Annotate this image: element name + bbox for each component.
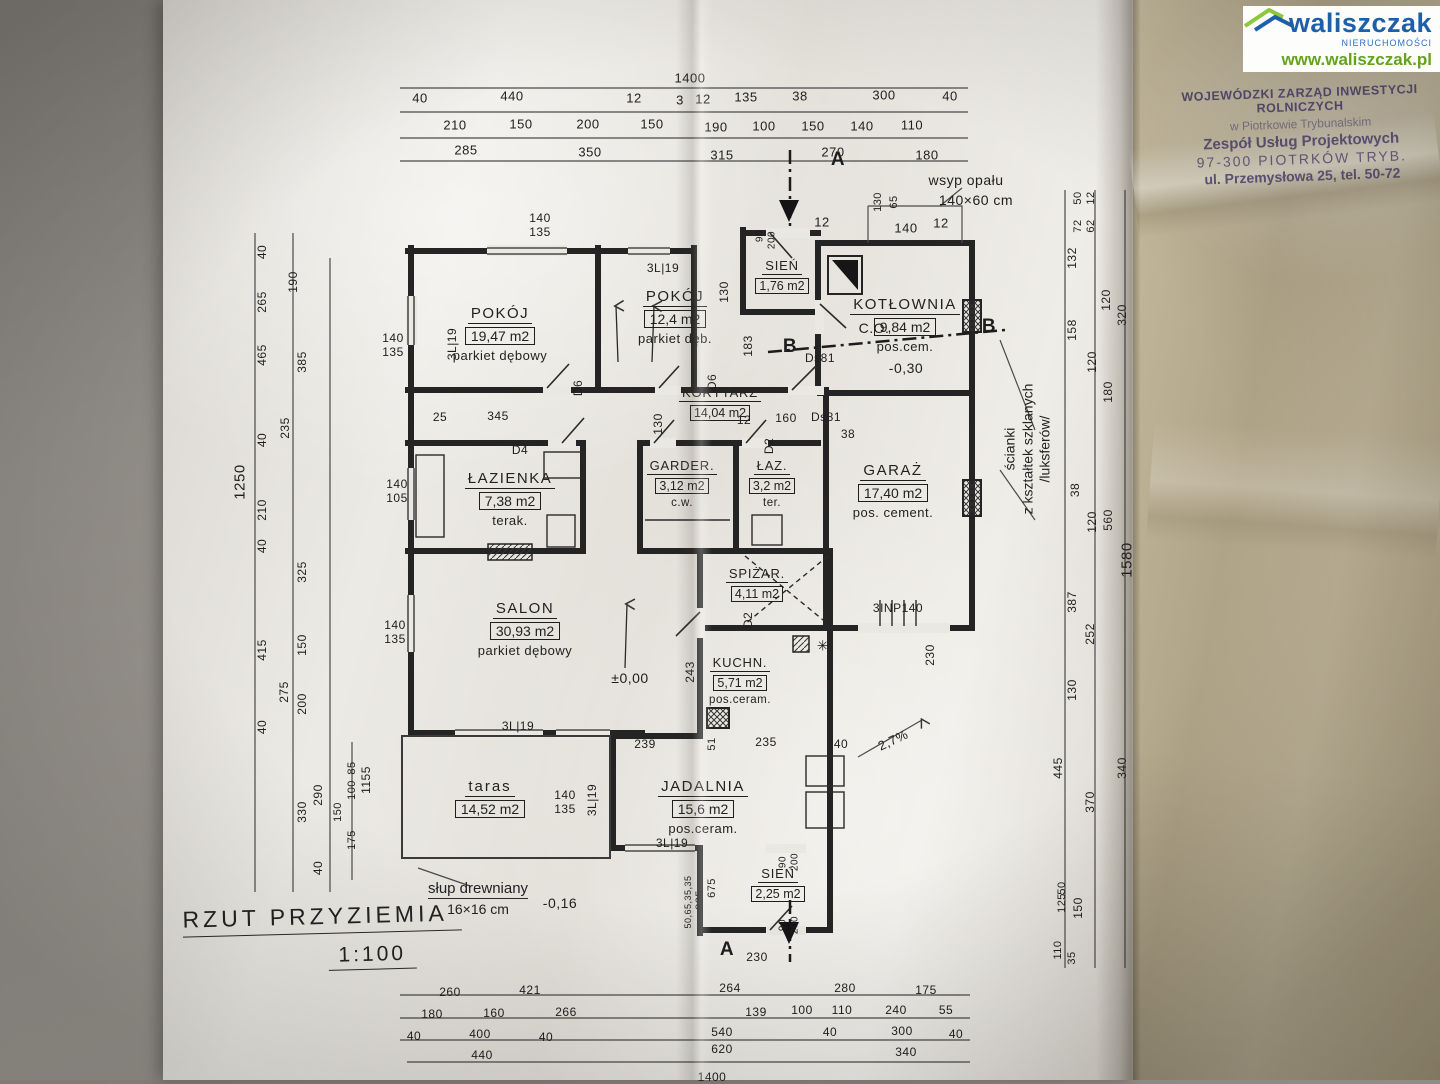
room-name: SALON — [493, 600, 557, 619]
dimension-label: 40 — [412, 91, 427, 106]
room-floor: pos. cement. — [853, 505, 933, 520]
dimension-label: 100 — [791, 1003, 813, 1017]
dimension-label: 265 — [255, 291, 269, 313]
dimension-label: 264 — [719, 981, 741, 995]
dimension-label: 110 — [1052, 940, 1064, 959]
dimension-label: 190 — [704, 120, 727, 135]
dimension-label: 675 — [706, 878, 718, 898]
dimension-label: 50 — [1072, 191, 1084, 204]
dimension-label: 160 — [483, 1006, 505, 1020]
dimension-label: -0,30 — [889, 360, 923, 376]
dimension-label: 440 — [500, 89, 523, 104]
room-name: POKÓJ — [643, 288, 707, 307]
room-label-korytarz: KORYTARZ 14,04 m2 — [655, 385, 785, 421]
dimension-label: D4 — [512, 443, 528, 457]
dimension-label: 150 — [509, 117, 532, 132]
dimension-label: 150 — [640, 117, 663, 132]
dimension-label: 3 — [676, 93, 684, 108]
dimension-label: 140 — [554, 788, 576, 802]
room-name: KUCHN. — [710, 655, 771, 672]
dimension-label: 200 — [790, 916, 801, 934]
dimension-label: 40 — [255, 539, 269, 553]
room-floor: parkiet dęb. — [638, 331, 712, 346]
room-label-kotlownia: KOTŁOWNIA 9,84 m2 pos.cem. — [840, 296, 970, 354]
dimension-label: 150 — [295, 634, 309, 656]
dimension-label: 825 — [694, 890, 706, 910]
dimension-label: 350 — [578, 145, 601, 160]
dimension-label: 12 — [933, 216, 948, 231]
room-name: JADALNIA — [658, 778, 748, 797]
dimension-label: 135 — [529, 225, 551, 239]
dimension-label: 620 — [711, 1042, 733, 1056]
room-name: KORYTARZ — [679, 385, 761, 402]
room-area: 15,6 m2 — [672, 800, 735, 818]
dimension-label: 130 — [872, 192, 884, 212]
office-stamp: WOJEWÓDZKI ZARZĄD INWESTYCJI ROLNICZYCH … — [1156, 81, 1440, 189]
dimension-label: 1155 — [359, 766, 373, 794]
drawing-title: RZUT PRZYZIEMIA 1:100 — [182, 899, 463, 974]
dimension-label: 239 — [634, 737, 656, 751]
dimension-label: 387 — [1065, 591, 1079, 613]
dimension-label: 440 — [471, 1048, 493, 1062]
room-label-salon: SALON 30,93 m2 parkiet dębowy — [450, 600, 600, 658]
dimension-label: 140 — [384, 618, 406, 632]
dimension-label: 230 — [746, 950, 768, 964]
dimension-label: 140 — [894, 221, 917, 236]
note-line: z kształtek szklanych — [1019, 357, 1037, 542]
dimension-label: 140 — [386, 477, 408, 491]
dimension-label: 12 — [814, 215, 829, 230]
dimension-label: 1400 — [675, 71, 706, 86]
dimension-label: 40 — [255, 433, 269, 447]
dimension-label: 40 — [255, 245, 269, 259]
dimension-label: 150 — [801, 119, 824, 134]
dimension-label: 135 — [384, 632, 406, 646]
room-area: 1,76 m2 — [755, 278, 808, 294]
dimension-label: 180 — [421, 1007, 443, 1021]
dimension-label: 285 — [454, 143, 477, 158]
dimension-label: B — [783, 336, 797, 358]
dimension-label: 235 — [755, 735, 777, 749]
room-area: 9,84 m2 — [874, 318, 937, 336]
dimension-label: 300 — [891, 1024, 913, 1038]
dimension-label: 132 — [1065, 247, 1079, 269]
dimension-label: 275 — [277, 681, 291, 703]
dimension-label: 320 — [1115, 304, 1129, 326]
dimension-label: 51 — [706, 737, 718, 750]
dimension-label: 38 — [792, 89, 807, 104]
dimension-label: 560 — [1101, 509, 1115, 531]
room-area: 5,71 m2 — [713, 675, 766, 691]
room-label-garaz: GARAŻ 17,40 m2 pos. cement. — [818, 462, 968, 520]
dimension-label: 385 — [295, 351, 309, 373]
room-label-laz: ŁAZ. 3,2 m2 ter. — [727, 458, 817, 509]
dimension-label: 315 — [710, 148, 733, 163]
dimension-label: 35 — [1066, 951, 1078, 964]
dimension-label: 180 — [1101, 381, 1115, 403]
dimension-label: 230 — [923, 644, 937, 666]
dimension-label: 3INP140 — [873, 601, 923, 615]
room-label-spizarnia: SPIŻAR. 4,11 m2 — [702, 566, 812, 602]
dimension-label: 62 — [1085, 219, 1097, 232]
room-area: 3,12 m2 — [655, 478, 708, 494]
room-name: SPIŻAR. — [726, 566, 788, 583]
dimension-label: D2 — [741, 612, 755, 628]
dimension-label: A — [720, 939, 734, 961]
dimension-label: 65 — [888, 195, 900, 208]
room-label-sien-gorna: SIEŃ 1,76 m2 — [732, 258, 832, 294]
dimension-label: 40 — [407, 1029, 421, 1043]
dimension-label: 190 — [286, 271, 300, 293]
dimension-label: 40 — [949, 1027, 963, 1041]
dimension-label: 100 — [346, 780, 358, 800]
dimension-label: 465 — [255, 344, 269, 366]
room-label-kuchnia: KUCHN. 5,71 m2 pos.ceram. — [680, 655, 800, 706]
room-floor: parkiet dębowy — [478, 643, 572, 658]
room-name: taras — [465, 778, 514, 797]
title-text: RZUT PRZYZIEMIA — [182, 899, 462, 937]
dimension-label: 345 — [487, 409, 509, 423]
dimension-label: 421 — [519, 983, 541, 997]
dimension-label: 125 — [1056, 893, 1068, 913]
room-name: SIEŃ — [758, 866, 798, 883]
dimension-label: 50,65,35,35 — [683, 875, 693, 928]
room-area: 3,2 m2 — [749, 478, 795, 494]
dimension-label: B — [982, 316, 996, 338]
dimension-label: 135 — [382, 345, 404, 359]
dimension-label: D6 — [571, 380, 585, 396]
room-label-lazienka: ŁAZIENKA 7,38 m2 terak. — [435, 470, 585, 528]
dimension-label: 2,7% — [875, 727, 910, 754]
dimension-label: 90 — [755, 230, 766, 242]
dimension-label: 40 — [255, 720, 269, 734]
dimension-label: A — [831, 149, 845, 171]
dimension-label: 415 — [255, 639, 269, 661]
dimension-label: Ds81 — [805, 351, 835, 365]
room-area: 30,93 m2 — [490, 622, 560, 640]
dimension-label: 110 — [901, 118, 923, 133]
room-area: 17,40 m2 — [858, 484, 928, 502]
dimension-label: ±0,00 — [611, 670, 648, 686]
dimension-label: 140 — [850, 119, 873, 134]
room-label-jadalnia: JADALNIA 15,6 m2 pos.ceram. — [638, 778, 768, 836]
title-scale: 1:100 — [328, 942, 416, 971]
room-floor: pos.ceram. — [668, 821, 737, 836]
room-area: 19,47 m2 — [465, 327, 535, 345]
room-floor: terak. — [492, 513, 528, 528]
brand-subtitle: NIERUCHOMOŚCI — [1341, 38, 1432, 48]
dimension-label: -0,16 — [543, 895, 577, 911]
dimension-label: 72 — [1072, 219, 1084, 232]
room-floor: ter. — [763, 497, 781, 509]
dimension-label: wsyp opału — [928, 172, 1003, 188]
room-area: 14,52 m2 — [455, 800, 525, 818]
dimension-label: 140 — [529, 211, 551, 225]
dimension-label: 1580 — [1119, 542, 1136, 577]
room-area: 14,04 m2 — [690, 405, 750, 421]
dimension-label: 266 — [555, 1005, 577, 1019]
room-label-pokoj-2: POKÓJ 12,4 m2 parkiet dęb. — [610, 288, 740, 346]
dimension-label: 55 — [939, 1003, 953, 1017]
brand-name: waliszczak — [1289, 10, 1432, 37]
dimension-label: 90 — [778, 919, 789, 931]
room-area: 2,25 m2 — [751, 886, 804, 902]
dimension-label: ✳ — [817, 638, 829, 655]
dimension-label: 183 — [741, 335, 755, 357]
dimension-label: 200 — [576, 117, 599, 132]
note-line: słup drewniany — [428, 880, 528, 899]
dimension-label: 100 — [752, 119, 775, 134]
dimension-label: 40 — [942, 89, 957, 104]
dimension-label: 40 — [834, 737, 848, 751]
dimension-label: 180 — [915, 148, 938, 163]
dimension-label: 40 — [539, 1030, 553, 1044]
brand-url: www.waliszczak.pl — [1281, 50, 1432, 70]
dimension-label: 40 — [311, 861, 325, 875]
dimension-label: 175 — [915, 983, 937, 997]
dimension-label: 150 — [1071, 897, 1085, 919]
room-name: POKÓJ — [468, 305, 532, 324]
dimension-label: 140 — [382, 331, 404, 345]
dimension-label: 25 — [433, 410, 447, 424]
dimension-label: 260 — [439, 985, 461, 999]
dimension-label: 38 — [841, 427, 855, 441]
room-floor: c.w. — [671, 497, 693, 509]
dimension-label: 340 — [1115, 757, 1129, 779]
dimension-label: 135 — [554, 802, 576, 816]
room-area: 12,4 m2 — [644, 310, 707, 328]
room-label-pokoj-1: POKÓJ 19,47 m2 parkiet dębowy — [425, 305, 575, 363]
room-name: ŁAZIENKA — [465, 470, 556, 489]
room-name: KOTŁOWNIA — [850, 296, 960, 315]
dimension-label: 540 — [711, 1025, 733, 1039]
room-floor: parkiet dębowy — [453, 348, 547, 363]
dimension-label: 38 — [1068, 483, 1082, 497]
glass-block-note: ścianki z kształtek szklanych /luksferów… — [1002, 357, 1064, 542]
room-name: SIEŃ — [762, 258, 802, 275]
dimension-label: 200 — [295, 693, 309, 715]
dimension-label: 120 — [1085, 511, 1099, 533]
room-label-sien-dolna: SIEŃ 2,25 m2 — [728, 866, 828, 902]
dimension-label: 3L|19 — [585, 784, 599, 816]
room-name: ŁAZ. — [754, 458, 791, 475]
dimension-label: 235 — [278, 417, 292, 439]
dimension-label: 12 — [1085, 191, 1097, 204]
room-area: 7,38 m2 — [479, 492, 542, 510]
dimension-label: 330 — [295, 801, 309, 823]
dimension-label: 210 — [443, 118, 466, 133]
dimension-label: 3L|19 — [656, 836, 688, 850]
dimension-label: 210 — [255, 499, 269, 521]
dimension-label: 85 — [346, 761, 358, 774]
dimension-label: 252 — [1083, 623, 1097, 645]
dimension-label: 105 — [386, 491, 408, 505]
dimension-label: 135 — [734, 90, 757, 105]
dimension-label: 158 — [1065, 319, 1079, 341]
dimension-label: 140×60 cm — [939, 192, 1013, 208]
dimension-label: 110 — [832, 1003, 853, 1017]
dimension-label: 12 — [626, 91, 641, 106]
dimension-label: 445 — [1051, 757, 1065, 779]
room-label-taras: taras 14,52 m2 — [425, 778, 555, 818]
dimension-label: D2 — [762, 438, 776, 454]
room-name: GARAŻ — [860, 462, 925, 481]
dimension-label: 300 — [872, 88, 895, 103]
dimension-label: 240 — [885, 1003, 907, 1017]
dimension-label: 340 — [895, 1045, 917, 1059]
room-name: GARDER. — [647, 458, 718, 475]
dimension-label: 290 — [311, 784, 325, 806]
note-line: ścianki — [1002, 357, 1020, 542]
dimension-label: 175 — [346, 830, 358, 850]
dimension-label: 3L|19 — [502, 719, 534, 733]
dimension-label: 130 — [1065, 679, 1079, 701]
dimension-label: 150 — [332, 802, 344, 822]
dimension-label: 325 — [295, 561, 309, 583]
dimension-label: 139 — [745, 1005, 767, 1019]
room-floor: pos.ceram. — [709, 694, 771, 706]
dimension-label: 1400 — [698, 1070, 727, 1084]
room-area: 4,11 m2 — [731, 586, 783, 602]
note-line: /luksferów/ — [1037, 357, 1055, 542]
roof-logo-icon — [1243, 6, 1295, 32]
dimension-label: 1250 — [232, 464, 249, 499]
room-floor: pos.cem. — [877, 339, 934, 354]
dimension-label: 280 — [834, 981, 856, 995]
agency-watermark: waliszczak NIERUCHOMOŚCI www.waliszczak.… — [1243, 6, 1440, 72]
dimension-label: 3L|19 — [647, 261, 679, 275]
dimension-label: 120 — [1099, 289, 1113, 311]
dimension-label: 400 — [469, 1027, 491, 1041]
dimension-label: 200 — [767, 231, 778, 249]
room-label-garderoba: GARDER. 3,12 m2 c.w. — [632, 458, 732, 509]
dimension-label: 40 — [823, 1025, 837, 1039]
dimension-label: 370 — [1083, 791, 1097, 813]
dimension-label: 120 — [1085, 351, 1099, 373]
dimension-label: Ds81 — [811, 410, 841, 424]
dimension-label: 12 — [695, 92, 710, 107]
